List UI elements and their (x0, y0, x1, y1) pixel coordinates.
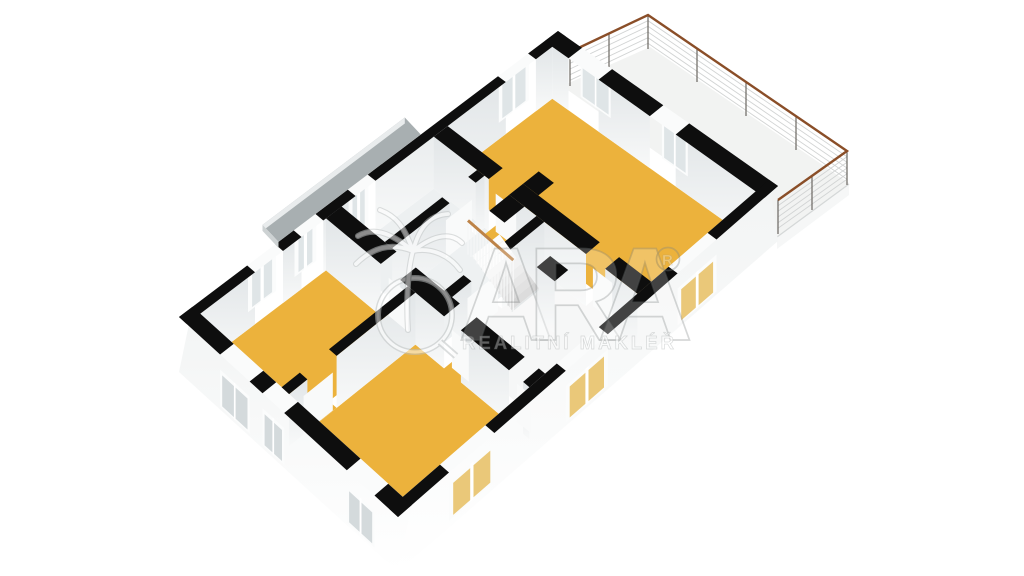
svg-text:R: R (662, 252, 673, 269)
svg-text:REALITNÍ MAKLÉŘ: REALITNÍ MAKLÉŘ (462, 332, 679, 353)
